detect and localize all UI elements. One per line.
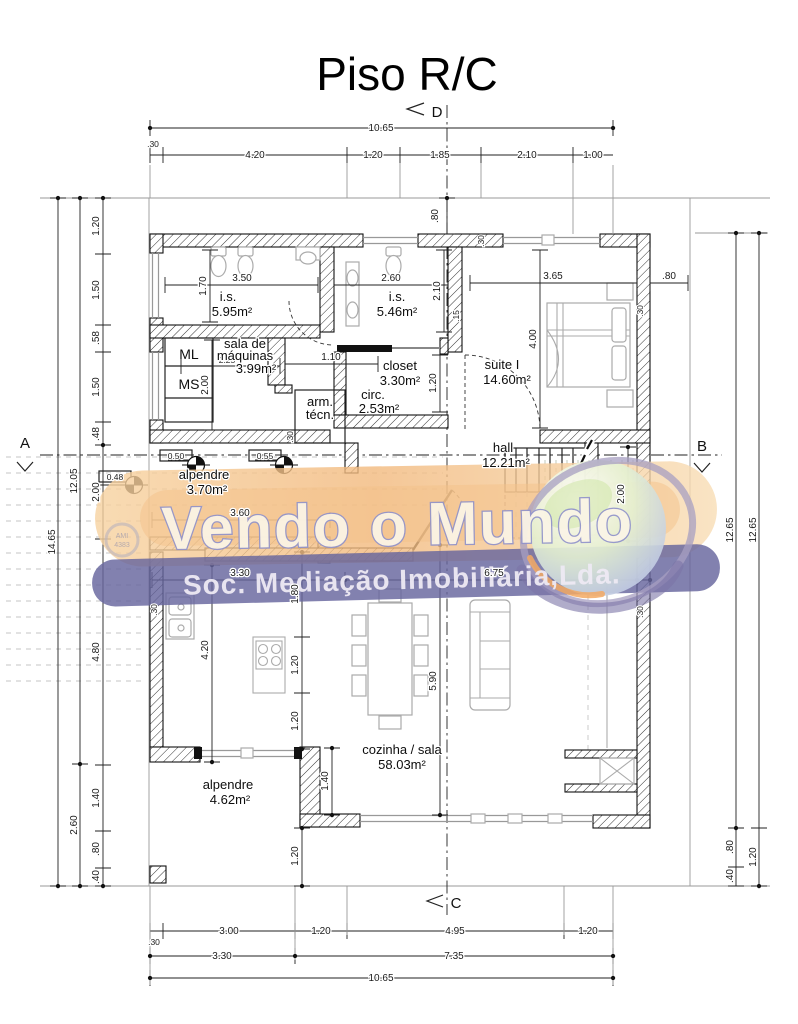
dim-label: 3.00 (219, 926, 239, 937)
room-label-is2: i.s. (389, 289, 406, 304)
dim-label: 1.20 (311, 926, 331, 937)
dim-label: 3.65 (543, 271, 563, 282)
dim-label: 1.00 (583, 150, 603, 161)
dim-label: 12.65 (725, 517, 736, 542)
dining-table-icon (352, 589, 428, 729)
dim-label: .30 (285, 431, 295, 443)
dim-label: 4.20 (245, 150, 265, 161)
room-area-is1: 5.95m² (212, 304, 253, 319)
section-marker-b: B (697, 438, 707, 455)
dim-label: 3.60 (230, 508, 250, 519)
dim-label: .80 (91, 842, 102, 856)
room-label-hall: hall (493, 440, 513, 455)
dim-label: 1.20 (578, 926, 598, 937)
room-label-closet: closet (383, 358, 417, 373)
dim-label: 3.30 (230, 568, 250, 579)
room-area-kitchen-living: 58.03m² (378, 757, 426, 772)
dim-label: 0.55 (257, 451, 274, 461)
dim-label: .58 (91, 331, 102, 345)
dim-label: .30 (635, 305, 645, 317)
sliding-door-icon (337, 345, 392, 352)
dim-label: 2.00 (91, 482, 102, 502)
room-area-circ: 2.53m² (359, 401, 400, 416)
floor-plan-page: Vendo o Mundo Soc. Mediação Imobiliária,… (0, 0, 798, 1024)
dim-label: .30 (635, 606, 645, 618)
dim-top-total: 10.65 (368, 123, 393, 134)
bed-icon (547, 283, 633, 407)
dim-label: 1.80 (290, 584, 301, 604)
dim-label: 2.00 (200, 375, 211, 395)
dim-label: 1.40 (91, 788, 102, 808)
dim-label: 1.50 (91, 280, 102, 300)
dim-label: 3.30 (212, 951, 232, 962)
toilet-icon (211, 247, 226, 277)
room-area-closet: 3.30m² (380, 373, 421, 388)
dim-label: 2.10 (432, 281, 443, 301)
section-marker-d: D (432, 104, 443, 121)
room-area-is2: 5.46m² (377, 304, 418, 319)
dim-label: 1.20 (91, 216, 102, 236)
dim-label: 1.50 (91, 377, 102, 397)
double-washbasin-icon (346, 262, 359, 326)
dim-label: 12.65 (748, 517, 759, 542)
dim-label: 1.20 (748, 847, 759, 867)
dim-label: .48 (91, 427, 102, 441)
room-label-kitchen-living: cozinha / sala (362, 742, 442, 757)
dim-left-outer: 14.65 (47, 529, 58, 554)
dim-label: 1.85 (430, 150, 450, 161)
dim-label: 1.20 (290, 846, 301, 866)
room-label-porch-back: alpendre (203, 777, 254, 792)
dim-label: .15 (451, 310, 461, 322)
sofa-icon (470, 600, 510, 710)
room-area-machines: 3.99m² (236, 361, 277, 376)
dim-label: 3.50 (232, 273, 252, 284)
dim-label: 12.05 (69, 468, 80, 493)
section-arrow-left-icon (17, 462, 33, 471)
dim-label: 4.20 (200, 640, 211, 660)
dim-label: 2.60 (69, 815, 80, 835)
room-area-porch-back: 4.62m² (210, 792, 251, 807)
svg-text:4383: 4383 (114, 542, 130, 549)
room-area-suite: 14.60m² (483, 372, 531, 387)
dim-label: 4.80 (91, 642, 102, 662)
dim-label: 2.00 (616, 484, 627, 504)
dim-label: .80 (662, 271, 676, 282)
dim-label: 2.10 (517, 150, 537, 161)
watermark-brand: Vendo o Mundo (161, 487, 635, 562)
dim-label: 0.48 (107, 472, 124, 482)
dim-label: .30 (148, 937, 160, 947)
dim-label: .80 (725, 840, 736, 854)
dim-label: 7.35 (444, 951, 464, 962)
svg-text:AMI: AMI (116, 533, 129, 540)
page-title: Piso R/C (316, 48, 497, 100)
washbasin-icon (296, 247, 320, 264)
dim-label: 1.20 (363, 150, 383, 161)
dim-label: 1.10 (321, 352, 341, 363)
dim-label: 4.95 (445, 926, 465, 937)
dim-label: .30 (147, 139, 159, 149)
dim-bottom-total: 10.65 (368, 973, 393, 984)
room-area-hall: 12.21m² (482, 455, 530, 470)
room-label-porch-front: alpendre (179, 467, 230, 482)
room-label-is1: i.s. (220, 289, 237, 304)
dim-label: 1.20 (290, 711, 301, 731)
dim-label: .30 (476, 235, 486, 247)
dim-label: 1.40 (320, 771, 331, 791)
dim-label: .40 (91, 870, 102, 884)
section-arrow-top-icon (407, 103, 424, 115)
dim-label: .40 (725, 869, 736, 883)
room-area-porch-front: 3.70m² (187, 482, 228, 497)
dim-label: 1.20 (290, 655, 301, 675)
dim-label: 5.90 (428, 671, 439, 691)
dim-label: 0.50 (168, 451, 185, 461)
dim-label: 2.60 (381, 273, 401, 284)
appliance-label-ms: MS (179, 376, 200, 392)
section-marker-c: C (451, 895, 462, 912)
floor-plan-drawing: Vendo o Mundo Soc. Mediação Imobiliária,… (0, 0, 798, 1024)
room-label-circ: circ. (361, 387, 385, 402)
dim-label: .80 (430, 209, 441, 223)
dim-label: .30 (149, 604, 159, 616)
dim-label: 6.75 (484, 568, 504, 579)
section-marker-a: A (20, 435, 30, 452)
dim-label: 1.20 (428, 373, 439, 393)
room-label-suite: suite I (485, 357, 520, 372)
dim-label: 4.00 (528, 329, 539, 349)
stove-island-icon (253, 637, 285, 693)
room-label-tech-2: técn. (306, 407, 334, 422)
appliance-label-ml: ML (179, 346, 199, 362)
window-mullion-icon (542, 235, 554, 245)
section-arrow-bottom-icon (427, 895, 443, 907)
dim-label: 1.70 (198, 276, 209, 296)
